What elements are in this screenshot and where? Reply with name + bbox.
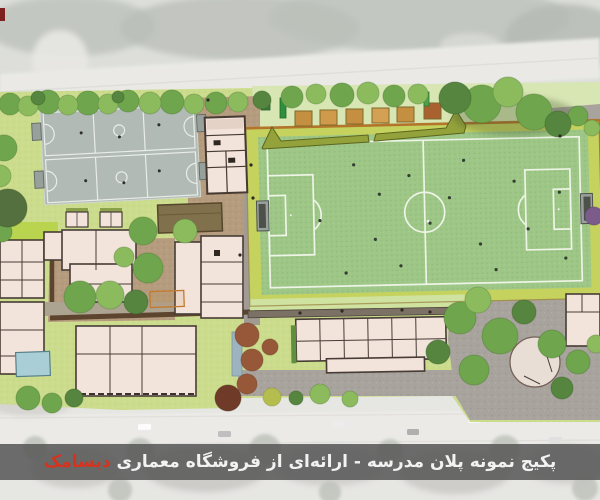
- sports-courts: [31, 102, 210, 205]
- maroon-street-tree: [215, 385, 241, 411]
- purple-tree: [585, 207, 600, 225]
- site-plan-image: [0, 0, 600, 500]
- football-pitch: [246, 120, 600, 315]
- caption-text: پکیج نمونه پلان مدرسه - ارائه‌ای از فروش…: [117, 452, 557, 472]
- pool: [16, 351, 51, 376]
- building-block: [201, 236, 243, 318]
- pavilion-building: [205, 116, 248, 193]
- site-plan-screenshot: پکیج نمونه پلان مدرسه - ارائه‌ای از فروش…: [0, 0, 600, 500]
- building-block: [44, 232, 64, 260]
- building-block: [76, 326, 196, 396]
- yellow-street-tree: [263, 388, 281, 406]
- map-edge-marker: [0, 8, 5, 21]
- caption-brand-text: دیسامک: [44, 452, 111, 472]
- court-surface: [40, 103, 201, 205]
- mini-court-marking: [150, 290, 185, 307]
- goal-left: [256, 201, 269, 231]
- caption-bar: پکیج نمونه پلان مدرسه - ارائه‌ای از فروش…: [0, 444, 600, 480]
